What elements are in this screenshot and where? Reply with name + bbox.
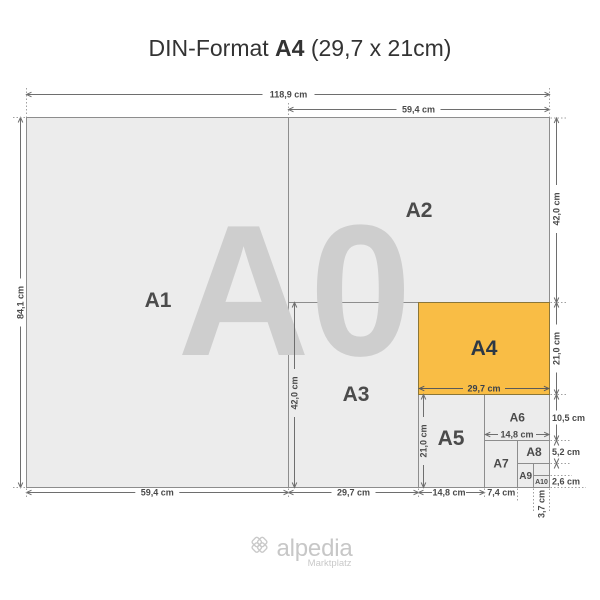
svg-text:A1: A1 (145, 289, 172, 312)
svg-text:7,4 cm: 7,4 cm (487, 488, 515, 498)
svg-text:14,8 cm: 14,8 cm (500, 430, 533, 440)
svg-text:A9: A9 (519, 471, 532, 482)
svg-text:A5: A5 (438, 427, 465, 450)
svg-text:5,2 cm: 5,2 cm (552, 447, 580, 457)
svg-text:42,0 cm: 42,0 cm (290, 376, 300, 409)
svg-text:A8: A8 (526, 445, 542, 459)
svg-text:29,7 cm: 29,7 cm (337, 488, 370, 498)
svg-text:DIN-Format A4 (29,7 x 21cm): DIN-Format A4 (29,7 x 21cm) (149, 35, 452, 61)
svg-text:A4: A4 (471, 337, 498, 360)
svg-text:21,0 cm: 21,0 cm (552, 332, 562, 365)
svg-text:118,9 cm: 118,9 cm (270, 90, 308, 100)
svg-text:A3: A3 (343, 383, 370, 406)
svg-text:59,4 cm: 59,4 cm (141, 488, 174, 498)
svg-text:A6: A6 (510, 411, 526, 425)
svg-text:A2: A2 (406, 199, 433, 222)
svg-text:10,5 cm: 10,5 cm (552, 413, 585, 423)
svg-text:A10: A10 (535, 479, 548, 486)
svg-text:21,0 cm: 21,0 cm (419, 424, 429, 457)
svg-text:2,6 cm: 2,6 cm (552, 476, 580, 486)
svg-text:A7: A7 (493, 456, 509, 470)
svg-text:42,0 cm: 42,0 cm (552, 192, 562, 225)
svg-text:29,7 cm: 29,7 cm (467, 384, 500, 394)
svg-text:14,8 cm: 14,8 cm (432, 488, 465, 498)
svg-text:84,1 cm: 84,1 cm (16, 286, 26, 319)
svg-text:Marktplatz: Marktplatz (308, 558, 352, 569)
svg-text:3,7 cm: 3,7 cm (537, 490, 547, 518)
svg-text:59,4 cm: 59,4 cm (402, 105, 435, 115)
